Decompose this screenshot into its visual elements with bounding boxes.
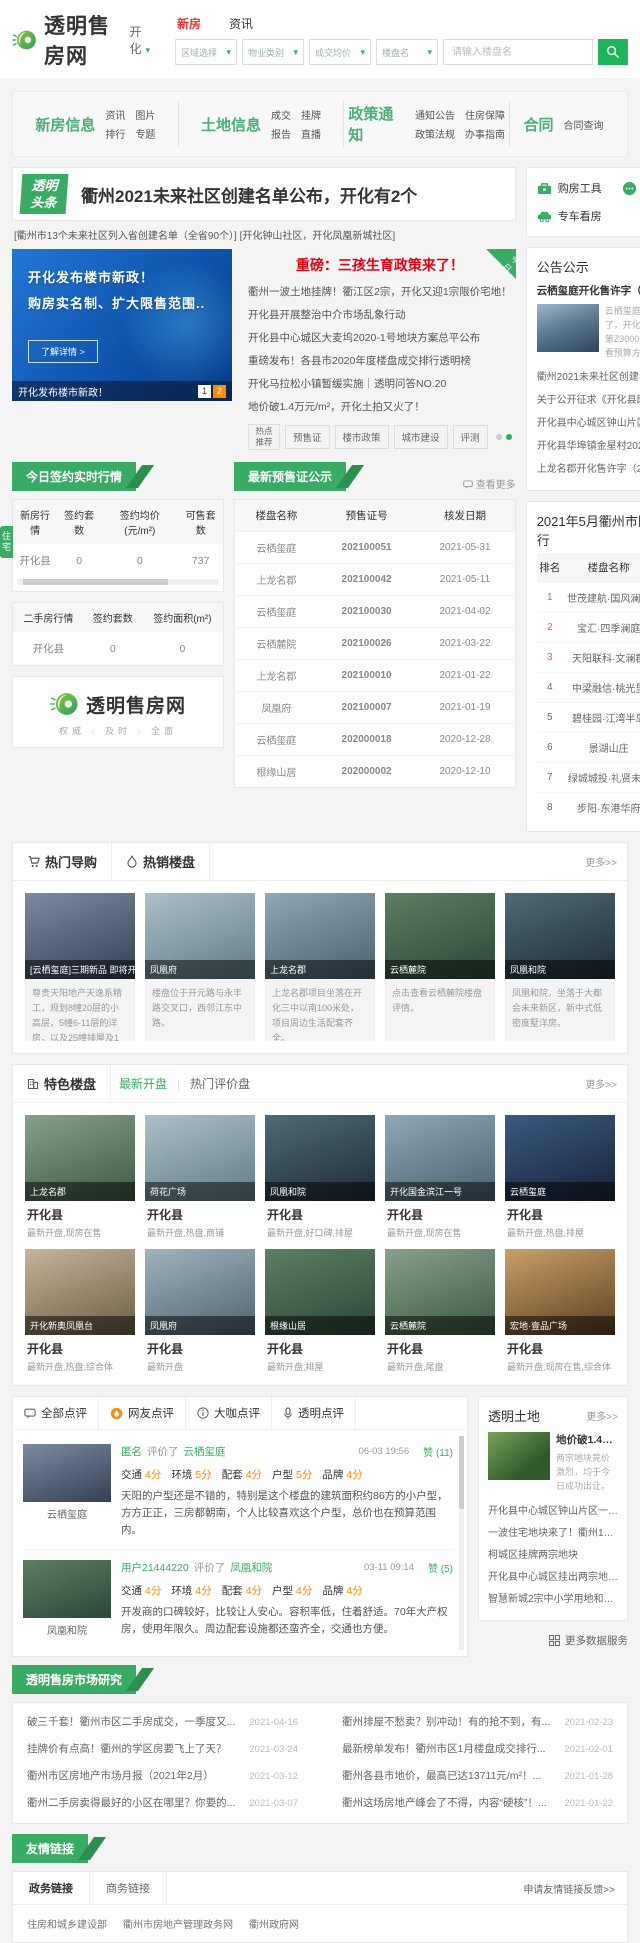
speech-bubble-icon [463, 480, 473, 489]
tab-popular-reviewed[interactable]: 热门评价盘 [190, 1075, 250, 1092]
tag-hot-recommend[interactable]: 热点推荐 [248, 424, 280, 450]
new-house-table: 新房行情 签约套数 签约均价 (元/m²) 可售套数 开化县 0 0 737 [13, 500, 223, 577]
friendly-links-ribbon: 友情链接 [12, 1834, 88, 1863]
presale-table-card: 楼盘名称 预售证号 核发日期 云栖玺庭2021000512021-05-31 上… [234, 499, 516, 788]
property-photo: 云栖麓院 [385, 1249, 495, 1335]
research-ribbon: 透明售房市场研究 [12, 1665, 136, 1694]
main-nav: 新房信息 资讯 图片 排行 专题 土地信息 成交 挂牌 报告 直播 政策通知 通… [12, 91, 628, 157]
tools-card: 购房工具 我要咨询 专车看房 [526, 167, 640, 237]
nav-group-policy: 政策通知 通知公告 住房保障 政策法规 办事指南 [344, 101, 510, 147]
nav-link[interactable]: 住房保障 [465, 107, 505, 122]
sidebar: 购房工具 我要咨询 专车看房 公告公示 [526, 167, 640, 832]
featured-more-link[interactable]: 更多>> [585, 1076, 617, 1091]
property-photo: 荷花广场 [145, 1115, 255, 1201]
review-date: 06-03 19:56 [358, 1446, 409, 1457]
hot-flame-icon [110, 1407, 123, 1420]
toolbox-icon [537, 181, 552, 196]
announcement-item[interactable]: 衢州2021未来社区创建名单公布，开化有2个未 [537, 366, 640, 389]
featured-project-card[interactable]: 凤凰府 开化县最新开盘 [145, 1249, 255, 1373]
main-left-column: 透明头条 衢州2021未来社区创建名单公布，开化有2个 [衢州市13个未来社区列… [12, 167, 516, 832]
filter-avg-price[interactable]: 成交均价▾ [309, 39, 371, 65]
property-photo: 根缘山居 [265, 1249, 375, 1335]
review-user[interactable]: 用户21444220 [121, 1560, 189, 1575]
chevron-down-icon: ▾ [360, 47, 365, 58]
ranking-title: 2021年5月衢州市区签约排行 [537, 511, 640, 549]
nav-link[interactable]: 图片 [135, 107, 155, 122]
nav-link[interactable]: 专题 [135, 126, 155, 141]
like-button[interactable]: 赞 (5) [428, 1560, 453, 1575]
property-photo [23, 1560, 111, 1618]
second-hand-table: 二手房行情 签约套数 签约面积(m²) 开化县 0 0 [13, 603, 223, 665]
property-photo: 上龙名郡 [265, 893, 375, 979]
nav-title-contract[interactable]: 合同 [524, 114, 554, 135]
tab-featured-projects[interactable]: 特色楼盘 [13, 1065, 111, 1102]
property-photo: 开化新奥凤凰台 [25, 1249, 135, 1335]
banner-caption: 开化发布楼市新政！ [18, 384, 108, 399]
city-selector[interactable]: 开化▾ [129, 23, 153, 57]
nav-title-land[interactable]: 土地信息 [201, 114, 261, 135]
property-photo: 云栖玺庭 [505, 1115, 615, 1201]
tag-market-policy[interactable]: 楼市政策 [335, 425, 389, 449]
land-item[interactable]: 一波住宅地块来了！衢州12月迎推地高峰，涉宅地 [488, 1523, 618, 1545]
footer-link[interactable]: 住房和城乡建设部 [27, 1916, 107, 1931]
featured-project-card[interactable]: 开化新奥凤凰台 开化县最新开盘,热盘,综合体 [25, 1249, 135, 1373]
hot-card[interactable]: [云栖玺庭]三期新品 即将开盘 尊贵天阳地产天逸系精工，规划8幢20层的小高层，… [25, 893, 135, 1041]
tool-car-viewing[interactable]: 专车看房 [537, 208, 618, 224]
announcement-featured-desc: 云栖玺庭三期预售证来了，开化售许字（2021）第Z300051号，点击查看预算方… [605, 304, 640, 360]
vertical-scrollbar[interactable] [459, 1436, 464, 1650]
research-item[interactable]: 破三千套！衢州市区二手房成交，一季度又...2021-04-16 [27, 1709, 298, 1736]
property-photo: 凤凰府 [145, 893, 255, 979]
table-row: 开化县 0 0 737 [13, 544, 223, 577]
tab-expert-reviews[interactable]: 大咖点评 [186, 1397, 272, 1429]
property-photo: 凤凰和院 [265, 1115, 375, 1201]
table-row[interactable]: 2宝汇·四季澜庭63 [537, 613, 640, 643]
announcement-featured-image[interactable] [537, 304, 599, 352]
cart-icon [27, 855, 40, 868]
table-row[interactable]: 凤凰府2021000072021-01-19 [235, 692, 515, 724]
nav-group-newhouse: 新房信息 资讯 图片 排行 专题 [13, 101, 179, 147]
property-photo: 宏地·壹品广场 [505, 1249, 615, 1335]
brand-card: 透明售房网 权威 · 及时 · 全面 [12, 676, 224, 748]
chat-icon [622, 181, 637, 196]
search-icon [606, 45, 620, 59]
nav-link[interactable]: 排行 [105, 126, 125, 141]
tab-news[interactable]: 资讯 [229, 15, 253, 34]
presale-table: 楼盘名称 预售证号 核发日期 云栖玺庭2021000512021-05-31 上… [235, 500, 515, 787]
filter-property-type[interactable]: 物业类别▾ [242, 39, 304, 65]
land-satellite-image[interactable] [488, 1432, 550, 1480]
hot-card[interactable]: 凤凰府 楼盘位于开元路与永丰路交叉口，西邻江东中路。 [145, 893, 255, 1041]
announcements-title: 公告公示 [537, 257, 589, 276]
table-row[interactable]: 8步阳·东港华府17 [537, 793, 640, 823]
nav-link[interactable]: 直播 [301, 126, 321, 141]
search-input[interactable] [443, 39, 593, 65]
property-photo: 开化国金滨江一号 [385, 1115, 495, 1201]
nav-link[interactable]: 通知公告 [415, 107, 455, 122]
banner-page-1[interactable]: 1 [198, 385, 211, 398]
property-photo: 云栖麓院 [385, 893, 495, 979]
logo-text: 透明售房网 [44, 10, 123, 70]
review-target-project[interactable]: 云栖玺庭 [184, 1444, 226, 1459]
tag-presale-cert[interactable]: 预售证 [285, 425, 330, 449]
table-row[interactable]: 4中梁融信·桃光里34 [537, 673, 640, 703]
headline-badge: 透明头条 [20, 174, 69, 214]
promo-banner[interactable]: 开化发布楼市新政！ 购房实名制、扩大限售范围.. 了解详情 > 开化发布楼市新政… [12, 249, 232, 401]
apply-link-exchange[interactable]: 申请友情链接反馈>> [523, 1881, 615, 1896]
property-photo [23, 1444, 111, 1502]
hot-guide-card: 热门导购 热销楼盘 更多>> [云栖玺庭]三期新品 即将开盘 尊贵天阳地产天逸系… [12, 842, 628, 1054]
search-button[interactable] [598, 39, 628, 65]
tab-divider: | [177, 1077, 180, 1091]
research-item[interactable]: 衢州这场房地产峰会了不得，内容“硬核”！...2021-01-22 [342, 1790, 613, 1817]
microphone-icon [283, 1407, 293, 1420]
land-column: 透明土地 更多>> 地价破1.4万元/m²，... 两宗地块竞价激烈，均于今日成… [478, 1396, 628, 1648]
review-text: 开发商的口碑较好，比较让人安心。容积率低，住着舒适。70年大产权房，使用年限久。… [121, 1604, 453, 1638]
land-card: 透明土地 更多>> 地价破1.4万元/m²，... 两宗地块竞价激烈，均于今日成… [478, 1396, 628, 1621]
news-top-headline[interactable]: 重磅：三孩生育政策来了！ [248, 255, 512, 275]
second-hand-table-card: 二手房行情 签约套数 签约面积(m²) 开化县 0 0 [12, 602, 224, 666]
review-scores: 交通4分 环境5分 配套4分 户型5分 品牌4分 [121, 1467, 453, 1482]
horizontal-scrollbar[interactable] [17, 579, 219, 585]
review-user[interactable]: 匿名 [121, 1444, 142, 1459]
featured-project-card[interactable]: 上龙名郡 开化县最新开盘,现房在售 [25, 1115, 135, 1239]
table-row[interactable]: 根缘山居2020000022020-12-10 [235, 756, 515, 788]
nav-link[interactable]: 资讯 [105, 107, 125, 122]
brand-name: 透明售房网 [86, 691, 186, 718]
ranking-card: 2021年5月衢州市区签约排行 排名 楼盘名称 签约套数 1世茂建航·国风澜园8… [526, 501, 640, 832]
hot-card[interactable]: 凤凰和院 凤凰和院，坐落于大都会未来新区，新中式低密度墅洋房。 [505, 893, 615, 1041]
table-row[interactable]: 1世茂建航·国风澜园88 [537, 583, 640, 613]
hot-card[interactable]: 上龙名郡 上龙名郡项目坐落在开化三中以南100米处，项目周边生活配套齐全。 [265, 893, 375, 1041]
review-date: 03-11 09:14 [364, 1562, 414, 1573]
research-item[interactable]: 衢州市区房地产市场月报（2021年2月）2021-03-12 [27, 1763, 298, 1790]
nav-title-policy[interactable]: 政策通知 [348, 103, 405, 145]
announcement-item[interactable]: 上龙名郡开化售许字（2021）第Z300042 [537, 458, 640, 481]
footer-link[interactable]: 衢州市房地产管理政务网 [123, 1916, 233, 1931]
tab-netizen-reviews[interactable]: 网友点评 [99, 1397, 186, 1429]
news-item[interactable]: 地价破1.4万元/m²，开化土拍又火了！ [248, 396, 512, 419]
news-list: 今日 重磅：三孩生育政策来了！ 衢州一波土地挂牌！衢江区2宗，开化又迎1宗限价宅… [242, 249, 516, 450]
news-item[interactable]: 衢州一波土地挂牌！衢江区2宗，开化又迎1宗限价宅地！ [248, 281, 512, 304]
headline-title[interactable]: 衢州2021未来社区创建名单公布，开化有2个 [81, 182, 417, 207]
headline-subtitle[interactable]: [衢州市13个未来社区列入省创建名单（全省90个）] [开化钟山社区，开化凤凰新… [14, 227, 516, 242]
car-icon [537, 209, 552, 224]
research-item[interactable]: 衢州排屋不愁卖？别冲动！有的抢不到，有...2021-02-23 [342, 1709, 613, 1736]
today-corner-badge: 今日 [486, 249, 516, 279]
land-featured-desc: 两宗地块竞价激烈，均于今日成功出让。 [556, 1451, 618, 1493]
friendly-links-card: 政务链接 商务链接 申请友情链接反馈>> 住房和城乡建设部 衢州市房地产管理政务… [12, 1871, 628, 1943]
property-photo: 凤凰和院 [505, 893, 615, 979]
featured-card: 特色楼盘 最新开盘 | 热门评价盘 更多>> 上龙名郡 开化县最新开盘,现房在售… [12, 1064, 628, 1386]
banner-title-line2: 购房实名制、扩大限售范围.. [28, 293, 232, 312]
featured-project-card[interactable]: 云栖玺庭 开化县最新开盘,热盘,排屋 [505, 1115, 615, 1239]
review-target-project[interactable]: 凤凰和院 [230, 1560, 272, 1575]
table-row[interactable]: 3天阳联科·文澜郡52 [537, 643, 640, 673]
filter-project-name[interactable]: 楼盘名▾ [376, 39, 438, 65]
table-row[interactable]: 云栖玺庭2021000512021-05-31 [235, 532, 515, 564]
today-market-ribbon: 今日签约实时行情 [12, 462, 136, 491]
table-row[interactable]: 云栖玺庭2020000182020-12-28 [235, 724, 515, 756]
tag-city-construction[interactable]: 城市建设 [394, 425, 448, 449]
hot-card[interactable]: 云栖麓院 点击查看云栖麓院楼盘评情。 [385, 893, 495, 1041]
building-icon [27, 1078, 39, 1090]
site-logo[interactable]: 透明售房网 开化▾ [12, 10, 153, 70]
table-row[interactable]: 6景湖山庄23 [537, 733, 640, 763]
top-bar: 透明售房网 开化▾ 新房 资讯 区域选择▾ 物业类别▾ 成交均价▾ 楼盘名▾ [0, 0, 640, 79]
table-row[interactable]: 上龙名郡2021000422021-05-11 [235, 564, 515, 596]
research-item[interactable]: 衢州各县市地价，最高已达13711元/m²！...2021-01-28 [342, 1763, 613, 1790]
tool-consult[interactable]: 我要咨询 [622, 180, 640, 196]
nav-link[interactable]: 成交 [271, 107, 291, 122]
info-circle-icon [197, 1407, 209, 1419]
headline-box: 透明头条 衢州2021未来社区创建名单公布，开化有2个 [12, 167, 516, 221]
new-house-table-card: 住宅 新房行情 签约套数 签约均价 (元/m²) 可售套数 开化县 0 0 [12, 499, 224, 592]
featured-project-card[interactable]: 凤凰和院 开化县最新开盘,好口碑,排屋 [265, 1115, 375, 1239]
tab-new-house[interactable]: 新房 [177, 15, 201, 34]
chevron-down-icon: ▾ [293, 47, 298, 58]
news-item[interactable]: 开化马拉松小镇暂缓实施｜透明问答NO.20 [248, 373, 512, 396]
tag-review[interactable]: 评测 [453, 425, 488, 449]
residential-side-tab[interactable]: 住宅 [0, 526, 13, 558]
nav-link[interactable]: 政策法规 [415, 126, 455, 141]
today-market-section: 今日签约实时行情 住宅 新房行情 签约套数 签约均价 (元/m²) 可售套数 开… [12, 450, 224, 788]
research-card: 破三千套！衢州市区二手房成交，一季度又...2021-04-16 挂牌价有点高！… [12, 1702, 628, 1824]
land-more-link[interactable]: 更多>> [586, 1408, 618, 1423]
tab-transparent-reviews[interactable]: 透明点评 [272, 1397, 356, 1429]
announcement-featured-title[interactable]: 云栖玺庭开化售许字（2021）第Z300051号预... [537, 283, 640, 298]
banner-title-line1: 开化发布楼市新政！ [28, 267, 232, 286]
review-project-thumb[interactable]: 凤凰和院 [23, 1560, 111, 1638]
nav-link[interactable]: 报告 [271, 126, 291, 141]
land-item[interactable]: 智慧新城2宗中小学用地和1宗商住地调整公示 [488, 1589, 618, 1611]
land-item[interactable]: 柯城区挂牌两宗地块 [488, 1545, 618, 1567]
tab-all-reviews[interactable]: 全部点评 [13, 1397, 99, 1429]
tab-newly-opened[interactable]: 最新开盘 [119, 1075, 167, 1092]
review-scores: 交通4分 环境4分 配套4分 户型4分 品牌4分 [121, 1583, 453, 1598]
chevron-down-icon: ▾ [146, 45, 151, 55]
announcement-item[interactable]: 关于公开征求《开化县既有住宅加装电梯工作实... [537, 389, 640, 412]
featured-project-card[interactable]: 根缘山居 开化县最新开盘,排屋 [265, 1249, 375, 1373]
flame-icon [126, 855, 138, 868]
carousel-dot-active[interactable] [506, 434, 512, 440]
review-project-thumb[interactable]: 云栖玺庭 [23, 1444, 111, 1539]
filter-region[interactable]: 区域选择▾ [175, 39, 237, 65]
research-item[interactable]: 最新榜单发布！衢州市区1月楼盘成交排行...2021-02-01 [342, 1736, 613, 1763]
tab-business-links[interactable]: 商务链接 [90, 1872, 167, 1904]
nav-link[interactable]: 合同查询 [564, 117, 604, 132]
table-row[interactable]: 7绿城城投·礼贤未...18 [537, 763, 640, 793]
land-item[interactable]: 开化县中心城区挂出两宗地块，将于8月19日上午 [488, 1567, 618, 1589]
table-row[interactable]: 5碧桂园·江湾半岛32 [537, 703, 640, 733]
presale-ribbon: 最新预售证公示 [234, 462, 346, 491]
grid-icon [549, 1635, 560, 1646]
search-area: 新房 资讯 区域选择▾ 物业类别▾ 成交均价▾ 楼盘名▾ [175, 15, 628, 65]
research-item[interactable]: 衢州二手房卖得最好的小区在哪里？你要的...2021-03-07 [27, 1790, 298, 1817]
table-row[interactable]: 上龙名郡2021000102021-01-22 [235, 660, 515, 692]
news-item[interactable]: 重磅发布！各县市2020年度楼盘成交排行透明榜 [248, 350, 512, 373]
hot-guide-more-link[interactable]: 更多>> [585, 854, 617, 869]
table-row: 开化县 0 0 [13, 632, 223, 665]
review-text: 天阳的户型还是不错的，特别是这个楼盘的建筑面积约86方的小户型，方方正正，三房都… [121, 1488, 453, 1539]
tool-buy-toolkit[interactable]: 购房工具 [537, 180, 618, 196]
nav-link[interactable]: 办事指南 [465, 126, 505, 141]
news-item[interactable]: 开化县开展整治中介市场乱象行动 [248, 304, 512, 327]
review-item: 云栖玺庭 匿名 评价了 云栖玺庭 06-03 19:56 赞 (11) 交通4分… [23, 1440, 453, 1549]
nav-group-contract: 合同 合同查询 [510, 101, 627, 147]
ranking-table: 排名 楼盘名称 签约套数 1世茂建航·国风澜园88 2宝汇·四季澜庭63 3天阳… [537, 553, 640, 822]
more-data-services-link[interactable]: 更多数据服务 [478, 1633, 628, 1648]
tab-gov-links[interactable]: 政务链接 [13, 1872, 90, 1904]
carousel-dot[interactable] [496, 434, 502, 440]
announcement-item[interactable]: 开化县华埠镇金星村2021-1号地块总平面图批 [537, 435, 640, 458]
featured-project-card[interactable]: 宏地·壹品广场 开化县最新开盘,现房在售,综合体 [505, 1249, 615, 1373]
brand-slogan: 权威 · 及时 · 全面 [13, 724, 223, 737]
nav-link[interactable]: 挂牌 [301, 107, 321, 122]
nav-title-newhouse[interactable]: 新房信息 [35, 114, 95, 135]
presale-more-link[interactable]: 查看更多 [463, 476, 516, 491]
property-photo: 上龙名郡 [25, 1115, 135, 1201]
like-button[interactable]: 赞 (11) [423, 1444, 453, 1459]
land-featured-title[interactable]: 地价破1.4万元/m²，... [556, 1432, 618, 1447]
table-row[interactable]: 云栖麓院2021000262021-03-22 [235, 628, 515, 660]
brand-logo-icon [50, 689, 80, 719]
table-row[interactable]: 云栖玺庭2021000302021-04-02 [235, 596, 515, 628]
tab-hot-guide[interactable]: 热门导购 [13, 843, 112, 880]
tab-hot-selling[interactable]: 热销楼盘 [112, 843, 210, 880]
banner-page-2[interactable]: 2 [213, 385, 226, 398]
featured-project-card[interactable]: 云栖麓院 开化县最新开盘,尾盘 [385, 1249, 495, 1373]
logo-icon [12, 22, 38, 58]
news-item[interactable]: 开化县中心城区大麦坞2020-1号地块方案总平公布 [248, 327, 512, 350]
land-item[interactable]: 开化县中心城区钟山片区一宗地块成交，12387 [488, 1501, 618, 1523]
presale-section: 最新预售证公示 查看更多 楼盘名称 预售证号 核发日 [234, 450, 516, 788]
reviews-card: 全部点评 网友点评 大咖点评 [12, 1396, 468, 1657]
footer-link[interactable]: 衢州政府网 [249, 1916, 299, 1931]
chevron-down-icon: ▾ [427, 47, 432, 58]
featured-project-card[interactable]: 开化国金滨江一号 开化县最新开盘,现房在售 [385, 1115, 495, 1239]
property-photo: [云栖玺庭]三期新品 即将开盘 [25, 893, 135, 979]
property-photo: 凤凰府 [145, 1249, 255, 1335]
nav-group-land: 土地信息 成交 挂牌 报告 直播 [179, 101, 345, 147]
research-item[interactable]: 挂牌价有点高！衢州的学区房要飞上了天？2021-03-24 [27, 1736, 298, 1763]
announcement-item[interactable]: 开化县中心城区钟山片区2020-1号地块方案设 [537, 412, 640, 435]
land-title: 透明土地 [488, 1406, 540, 1425]
featured-project-card[interactable]: 荷花广场 开化县最新开盘,热盘,商铺 [145, 1115, 255, 1239]
review-item: 凤凰和院 用户21444220 评价了 凤凰和院 03-11 09:14 赞 (… [23, 1549, 453, 1648]
banner-detail-button[interactable]: 了解详情 > [28, 340, 98, 363]
speech-bubble-icon [24, 1408, 36, 1419]
chevron-down-icon: ▾ [226, 47, 231, 58]
announcements-card: 公告公示 更多>> 云栖玺庭开化售许字（2021）第Z300051号预... 云… [526, 247, 640, 491]
